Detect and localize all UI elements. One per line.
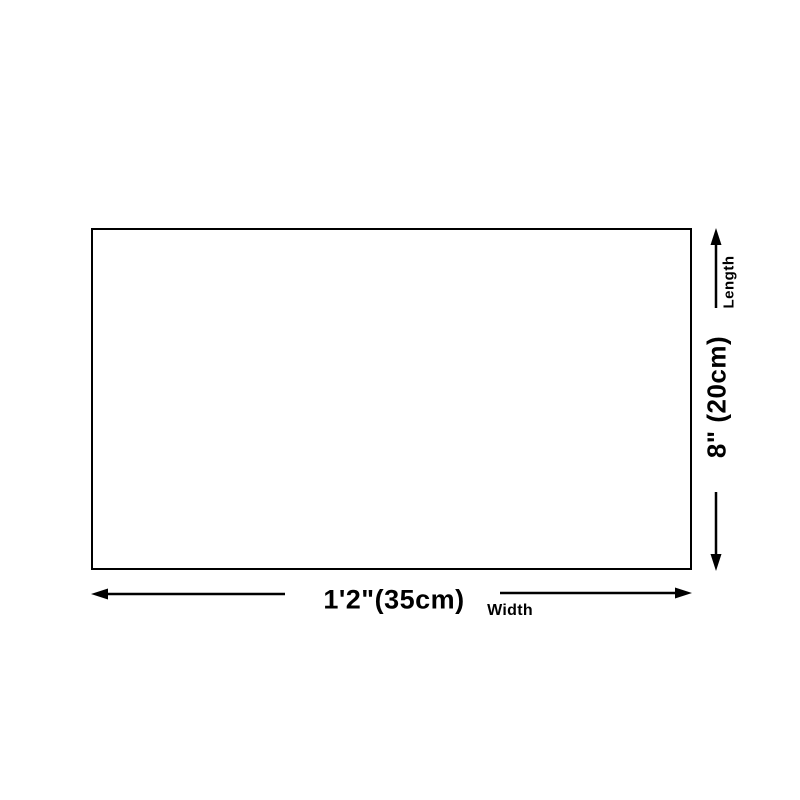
width-dimension-value: 1'2"(35cm) — [323, 585, 464, 616]
width-arrow-right-icon — [500, 588, 692, 599]
dimension-diagram: 1'2"(35cm) Width 8" (20cm) Length — [0, 0, 800, 800]
product-outline-rectangle — [91, 228, 692, 570]
length-arrow-down-icon — [711, 492, 722, 571]
length-caption: Length — [721, 256, 738, 309]
width-arrow-left-icon — [91, 589, 285, 600]
width-caption: Width — [487, 602, 533, 620]
length-dimension-value: 8" (20cm) — [702, 336, 733, 458]
